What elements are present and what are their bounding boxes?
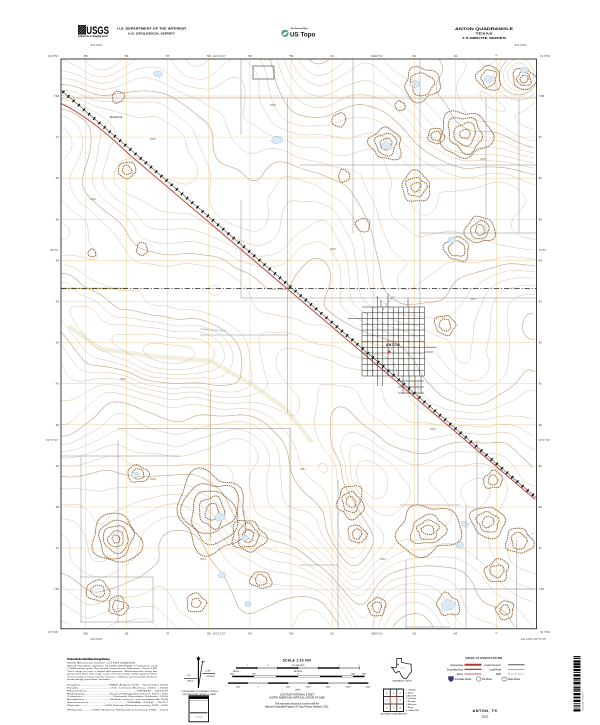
svg-text:82 MILS: 82 MILS — [207, 676, 216, 678]
svg-text:The National Map: The National Map — [291, 27, 309, 30]
svg-text:²55: ²55 — [83, 632, 88, 636]
svg-text:102°12'30": 102°12'30" — [212, 632, 226, 636]
svg-text:2022: 2022 — [482, 715, 489, 719]
svg-text:3538: 3538 — [480, 157, 486, 161]
svg-text:3549: 3549 — [150, 477, 156, 481]
svg-text:MILES: MILES — [233, 671, 240, 673]
svg-text:37: 37 — [56, 546, 60, 550]
svg-text:QUADRANGLE LOCATION: QUADRANGLE LOCATION — [392, 680, 412, 683]
svg-text:generalized for this map scale: generalized for this map scale. Private … — [67, 673, 158, 676]
svg-text:58: 58 — [207, 54, 211, 58]
svg-text:Structures....................: Structures..............................… — [67, 701, 170, 704]
svg-text:Secondary Hwy: Secondary Hwy — [447, 668, 464, 671]
svg-text:3548: 3548 — [270, 103, 276, 107]
svg-text:56: 56 — [125, 54, 129, 58]
svg-text:47: 47 — [56, 135, 60, 139]
svg-text:Local Road: Local Road — [489, 669, 501, 671]
svg-text:46: 46 — [539, 176, 543, 180]
svg-text:45: 45 — [56, 217, 60, 221]
svg-text:4WD: 4WD — [496, 674, 501, 676]
svg-text:Expressway: Expressway — [451, 664, 464, 667]
svg-text:³⁷48: ³⁷48 — [54, 94, 60, 98]
svg-text:3543: 3543 — [430, 427, 436, 431]
svg-text:42: 42 — [56, 341, 60, 345]
svg-text:41: 41 — [56, 382, 60, 386]
svg-text:KILOMETERS: KILOMETERS — [292, 665, 306, 667]
svg-text:41: 41 — [539, 382, 543, 386]
svg-text:44: 44 — [56, 258, 60, 262]
svg-text:61: 61 — [330, 54, 334, 58]
svg-text:U.S. GEOLOGICAL SURVEY: U.S. GEOLOGICAL SURVEY — [128, 31, 176, 35]
svg-text:Produced by the United States: Produced by the United States Geological… — [67, 657, 111, 661]
svg-text:SCALE 1:24 000: SCALE 1:24 000 — [283, 658, 311, 662]
svg-text:⁶60: ⁶60 — [289, 54, 294, 58]
svg-text:This map was produced to confo: This map was produced to conform with th… — [275, 703, 320, 706]
svg-text:NORTH AMERICAN VERTICAL DATUM: NORTH AMERICAN VERTICAL DATUM OF 1988 — [269, 696, 325, 699]
svg-text:US Topo: US Topo — [290, 32, 316, 39]
svg-text:33.7500: 33.7500 — [48, 630, 59, 634]
svg-text:. . .: . . . — [197, 707, 200, 709]
svg-text:Texas: Texas — [400, 668, 405, 670]
svg-text:Names.........................: Names..............................GNIS,… — [67, 690, 170, 692]
svg-text:3544: 3544 — [380, 557, 386, 561]
svg-text:Roads.........................: Roads..............................U.S. … — [67, 687, 170, 690]
svg-text:Ramp: Ramp — [457, 674, 464, 676]
svg-text:3552: 3552 — [120, 377, 126, 381]
svg-text:39: 39 — [539, 464, 543, 468]
svg-text:39: 39 — [56, 464, 60, 468]
svg-text:37: 37 — [539, 546, 543, 550]
svg-text:33°47'30": 33°47'30" — [539, 438, 551, 442]
svg-text:3540: 3540 — [470, 297, 476, 301]
svg-text:3551: 3551 — [200, 557, 206, 561]
svg-text:102°12'30": 102°12'30" — [212, 54, 226, 58]
svg-text:ADJOINING QUADRANGLES: ADJOINING QUADRANGLES — [381, 712, 408, 715]
svg-text:³⁷36: ³⁷36 — [54, 587, 60, 591]
svg-text:40: 40 — [56, 423, 60, 427]
svg-text:U.S. DEPARTMENT OF THE INTERIO: U.S. DEPARTMENT OF THE INTERIOR — [117, 26, 187, 30]
svg-text:57: 57 — [166, 54, 170, 58]
svg-text:64: 64 — [454, 632, 458, 636]
svg-text:Wetlands..........FWS National: Wetlands..........FWS National Wetlands … — [67, 709, 169, 712]
svg-text:61: 61 — [330, 632, 334, 636]
svg-text:1 Littlefield: 1 Littlefield — [406, 689, 415, 692]
svg-text:ROAD CLASSIFICATION: ROAD CLASSIFICATION — [466, 656, 503, 660]
svg-text:64: 64 — [454, 54, 458, 58]
svg-text:-102.2500: -102.2500 — [90, 43, 103, 47]
svg-text:102°10': 102°10' — [373, 54, 383, 58]
svg-text:7 Smyer: 7 Smyer — [406, 706, 413, 709]
svg-text:TEXAS: TEXAS — [476, 32, 493, 36]
svg-text:DECLINATION AT CENTER OF SHEET: DECLINATION AT CENTER OF SHEET — [183, 693, 217, 696]
svg-text:40: 40 — [539, 423, 543, 427]
svg-text:58: 58 — [207, 632, 211, 636]
svg-text:FEET: FEET — [295, 689, 301, 691]
svg-text:Imagery.......................: Imagery..............................NAI… — [67, 684, 169, 687]
svg-text:0°6': 0°6' — [187, 675, 191, 677]
svg-text:3547: 3547 — [300, 467, 306, 471]
svg-text:33°47'30": 33°47'30" — [46, 438, 58, 442]
svg-text:reservations may not be shown.: reservations may not be shown. Obtain pe… — [67, 675, 158, 678]
svg-text:42: 42 — [539, 341, 543, 345]
svg-text:7.5-MINUTE SERIES: 7.5-MINUTE SERIES — [462, 36, 506, 40]
svg-text:45: 45 — [539, 217, 543, 221]
svg-text:⁶60: ⁶60 — [289, 632, 294, 636]
svg-text:43: 43 — [56, 300, 60, 304]
svg-text:National Geospatial Program US: National Geospatial Program US Topo Prod… — [265, 705, 330, 708]
svg-text:56: 56 — [125, 632, 129, 636]
svg-text:US Route: US Route — [482, 678, 493, 681]
svg-text:Hydrography...................: Hydrography.............................… — [67, 692, 169, 695]
svg-text:Contours......................: Contours..............................Na… — [67, 695, 170, 698]
svg-text:33°50': 33°50' — [539, 248, 547, 252]
svg-text:Interstate Route: Interstate Route — [455, 678, 472, 681]
svg-text:-102.2500: -102.2500 — [90, 637, 103, 641]
svg-text:METERS: METERS — [294, 671, 303, 673]
svg-text:33°50': 33°50' — [50, 248, 58, 252]
svg-text:5 Roundup: 5 Roundup — [406, 701, 415, 703]
svg-text:38: 38 — [539, 505, 543, 509]
svg-text:4°38': 4°38' — [206, 671, 212, 673]
svg-text:3546: 3546 — [330, 247, 336, 251]
svg-text:UTM GRID AND 2022 MAGNETIC NOR: UTM GRID AND 2022 MAGNETIC NORTH — [181, 690, 218, 693]
svg-text:-102.1250 102°07'30": -102.1250 102°07'30" — [520, 637, 547, 641]
svg-text:Buckshot: Buckshot — [110, 115, 123, 119]
svg-text:3556: 3556 — [150, 137, 156, 141]
svg-text:2 MILS: 2 MILS — [187, 681, 194, 683]
svg-text:33.7500: 33.7500 — [540, 630, 551, 634]
svg-text:33.8750: 33.8750 — [48, 54, 59, 58]
svg-text:North American Datum of 1983 (: North American Datum of 1983 (NAD83) — [67, 662, 136, 665]
svg-text:This map is not a legal docume: This map is not a legal document. Bounda… — [67, 670, 159, 673]
svg-text:Local Connector: Local Connector — [484, 664, 501, 667]
svg-text:State Route: State Route — [508, 678, 521, 681]
svg-text:2 Spade: 2 Spade — [406, 692, 413, 694]
svg-text:USGS 24K 77934 TX: USGS 24K 77934 TX — [583, 691, 585, 711]
svg-text:57: 57 — [166, 632, 170, 636]
svg-text:59: 59 — [248, 54, 252, 58]
svg-text:8 Lubbock NW: 8 Lubbock NW — [406, 710, 419, 712]
svg-text:World Geodetic System of 1984: World Geodetic System of 1984 (WGS84). P… — [67, 664, 158, 667]
svg-text:ANTON, TX: ANTON, TX — [473, 709, 498, 713]
svg-text:²55: ²55 — [83, 54, 88, 58]
svg-text:1 24 000: 1 24 000 — [195, 717, 204, 719]
svg-text:Wetlands......................: Wetlands..............................FW… — [67, 704, 169, 707]
svg-text:-102.1250: -102.1250 — [514, 43, 527, 47]
svg-text:Boundaries....................: Boundaries..............................… — [67, 698, 169, 701]
svg-text:1 000-meter grid: Universal Tr: 1 000-meter grid: Universal Transverse M… — [67, 667, 158, 670]
svg-text:4 Levelland: 4 Levelland — [406, 698, 416, 700]
svg-text:38: 38 — [56, 505, 60, 509]
svg-text:ANTON: ANTON — [386, 343, 400, 347]
svg-text:43: 43 — [539, 300, 543, 304]
svg-text:MN: MN — [202, 662, 206, 664]
svg-text:63: 63 — [413, 632, 417, 636]
svg-text:science for a changing world: science for a changing world — [78, 35, 108, 38]
svg-text:3 Anton NE: 3 Anton NE — [406, 694, 416, 697]
svg-text:102°10': 102°10' — [373, 632, 383, 636]
svg-text:entering private lands.: entering private lands. — [67, 678, 112, 681]
svg-text:63: 63 — [413, 54, 417, 58]
svg-text:ANTON QUADRANGLE: ANTON QUADRANGLE — [455, 27, 514, 31]
svg-text:³⁷36: ³⁷36 — [539, 587, 545, 591]
svg-text:46: 46 — [56, 176, 60, 180]
svg-text:44: 44 — [539, 258, 543, 262]
svg-text:6 Whitharral: 6 Whitharral — [406, 703, 417, 706]
svg-text:³⁷48: ³⁷48 — [539, 94, 545, 98]
svg-text:33.8750: 33.8750 — [540, 54, 551, 58]
svg-text:47: 47 — [539, 135, 543, 139]
svg-text:3560: 3560 — [90, 197, 96, 201]
svg-text:59: 59 — [248, 632, 252, 636]
